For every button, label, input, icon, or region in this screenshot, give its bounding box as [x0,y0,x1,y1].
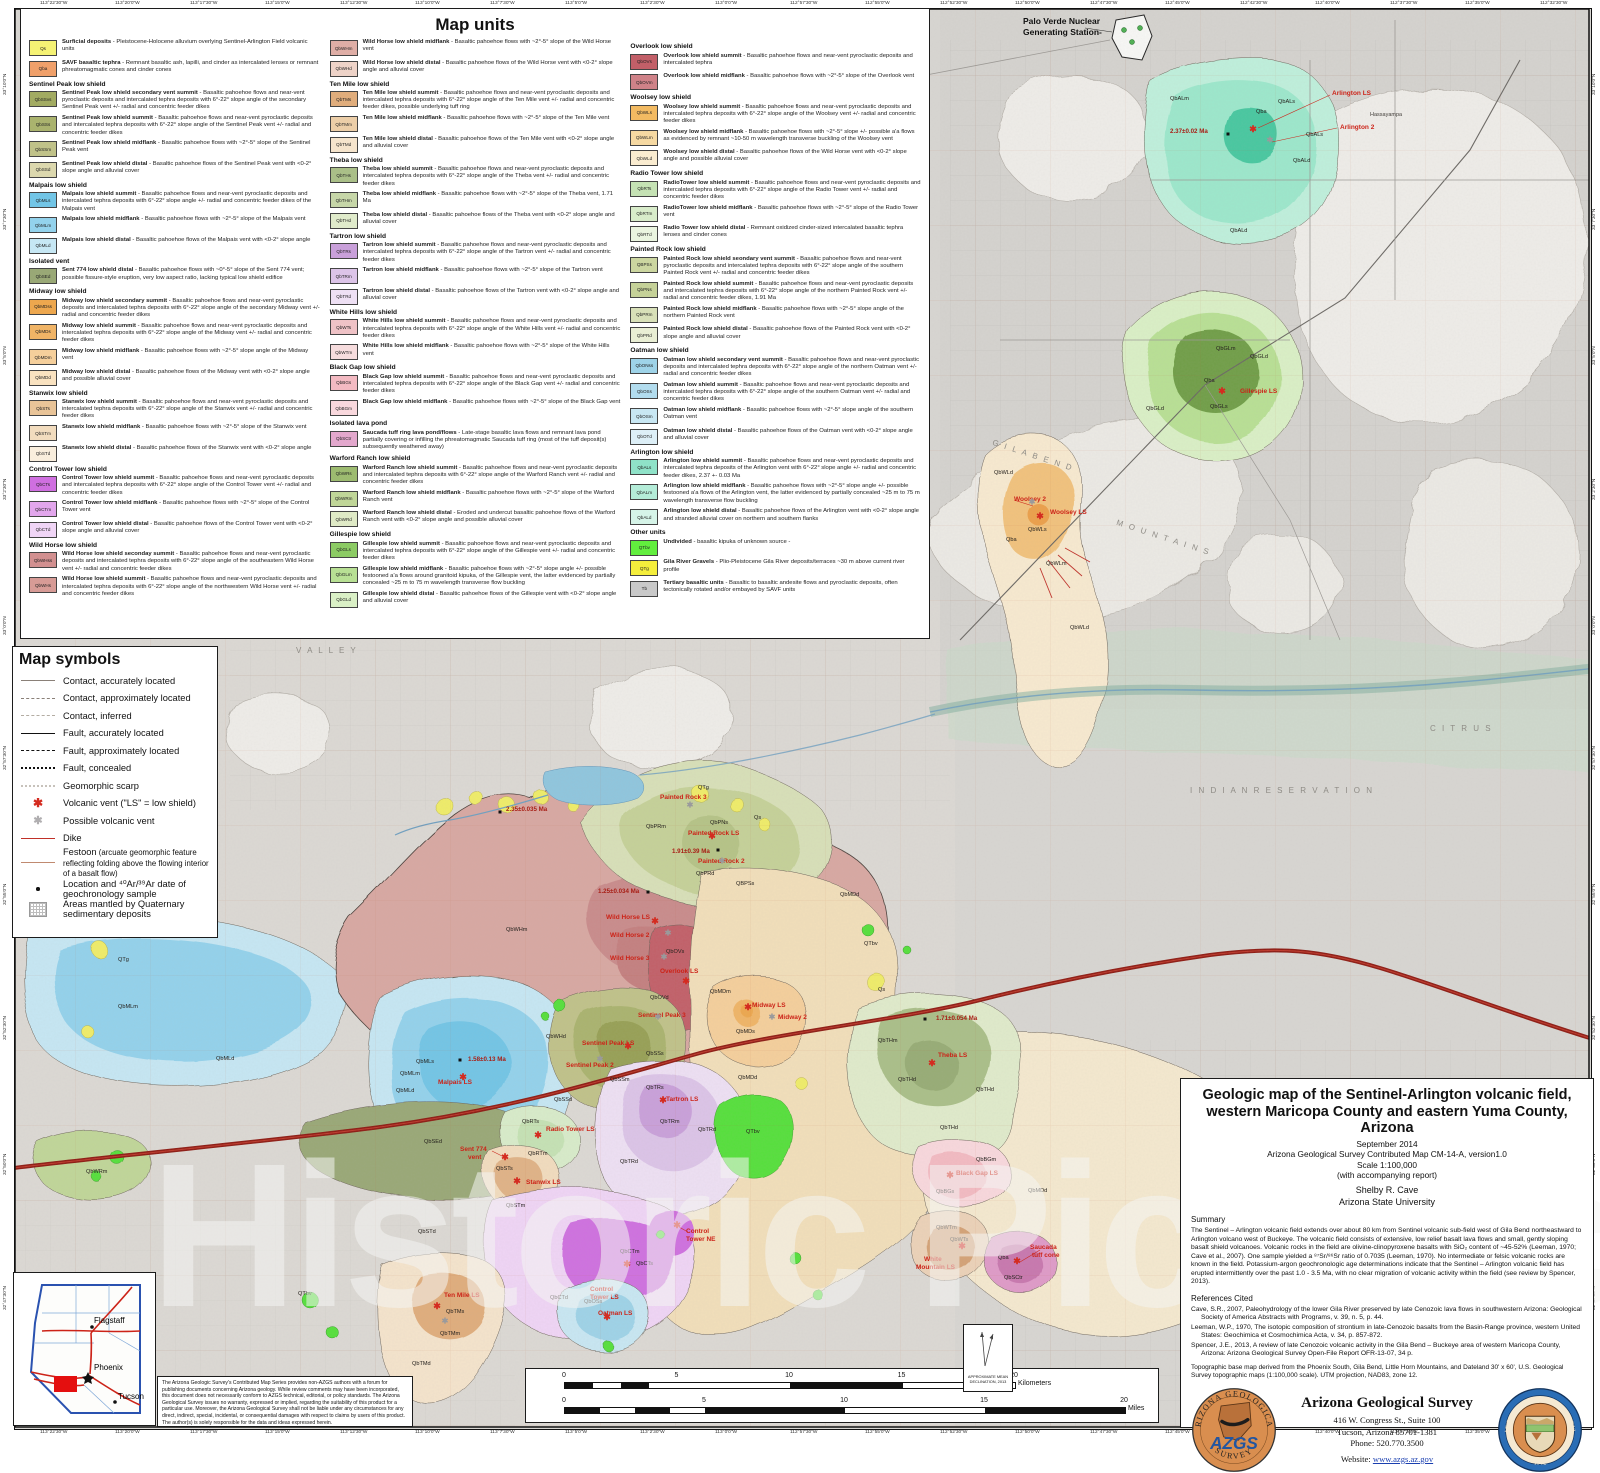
l-fa-symbol-icon [19,733,57,734]
unit-description: Tartron low shield distal - Basaltic pah… [363,288,621,302]
legend-unit-row: QbWHmWild Horse low shield midflank - Ba… [330,39,621,56]
unit-swatch: QbMDs [29,324,57,340]
map-series: Arizona Geological Survey Contributed Ma… [1191,1149,1583,1159]
longitude-label-bottom: 113°7'30"W [490,1430,515,1435]
unit-description: Sentinel Peak low shield summit - Basalt… [62,115,320,137]
disclaimer-box: The Arizona Geologic Survey's Contribute… [157,1376,413,1427]
unit-description: Painted Rock low shield summit - Basalti… [663,281,921,303]
scale-tick: 5 [675,1372,679,1379]
map-symbol-row: Fault, concealed [19,760,211,778]
unit-swatch: QbCTs [29,476,57,492]
unit-description: Theba low shield summit - Basaltic pahoe… [363,166,621,188]
unit-description: Ten Mile low shield distal - Basaltic pa… [363,136,621,150]
unit-description: Theba low shield distal - Basaltic pahoe… [363,212,621,226]
legend-group-header: Painted Rock low shield [630,246,921,253]
legend-group-header: Radio Tower low shield [630,170,921,177]
unit-swatch: QbSCtr [330,431,358,447]
unit-description: Radio Tower low shield distal - Remnant … [663,225,921,239]
unit-description: Painted Rock low shield seondary vent su… [663,256,921,278]
longitude-label-bottom: 113°12'30"W [340,1430,367,1435]
map-sheet: { "map_units": { "title": "Map units", "… [0,0,1600,1439]
longitude-label-top: 113°15'0"W [265,1,290,6]
unit-swatch: QbWHs [29,577,57,593]
unit-description: Stanwix low shield distal - Basaltic pah… [62,445,311,452]
unit-description: Gillespie low shield summit - Basaltic p… [363,541,621,563]
longitude-label-top: 112°40'0"W [1315,1,1340,6]
legend-unit-row: QbOSsOatman low shield summit - Basaltic… [630,382,921,404]
unit-swatch: QbOSs [630,383,658,399]
legend-unit-row: QbTHsTheba low shield summit - Basaltic … [330,166,621,188]
legend-unit-row: QbSTdStanwix low shield distal - Basalti… [29,445,320,462]
unit-description: Ten Mile low shield midflank - Basaltic … [363,115,610,122]
l-dk-symbol-icon [19,838,57,839]
agency-name: Arizona Geological Survey [1301,1395,1473,1412]
longitude-label-bottom: 113°5'0"W [565,1430,587,1435]
declination-diagram: APPROXIMATE MEAN DECLINATION, 2013 [963,1324,1013,1392]
unit-swatch: QbONss [630,358,658,374]
unit-swatch: QbTRd [330,289,358,305]
summary-heading: Summary [1191,1215,1583,1224]
scale-tick: 10 [840,1397,848,1404]
unit-description: Wild Horse low shield distal - Basaltic … [363,60,621,74]
unit-description: Painted Rock low shield midflank - Basal… [663,306,921,320]
unit-swatch: QbSTm [29,425,57,441]
unit-swatch: QbBGm [330,400,358,416]
longitude-label-top: 112°42'30"W [1240,1,1267,6]
legend-unit-row: QbWHdWild Horse low shield distal - Basa… [330,60,621,77]
longitude-label-bottom: 113°20'0"W [115,1430,140,1435]
longitude-label-top: 113°22'30"W [40,1,67,6]
legend-unit-row: QbTRsTartron low shield summit - Basalti… [330,242,621,264]
title-block: Geologic map of the Sentinel-Arlington v… [1180,1078,1594,1428]
map-symbol-label: Volcanic vent ("LS" = low shield) [63,798,196,808]
unit-swatch: QbCTd [29,522,57,538]
agency-phone: Phone: 520.770.3500 [1301,1438,1473,1450]
map-symbol-row: ✱Volcanic vent ("LS" = low shield) [19,795,211,813]
map-title: Geologic map of the Sentinel-Arlington v… [1197,1087,1577,1137]
unit-swatch: QbMDd [29,370,57,386]
legend-unit-row: QbRTmRadioTower low shield midflank - Ba… [630,205,921,222]
agency-block: ARIZONA GEOLOGICAL SURVEY AZGS Arizona G… [1191,1387,1583,1473]
longitude-label-top: 113°20'0"W [115,1,140,6]
legend-group-header: Tartron low shield [330,233,621,240]
unit-description: Oatman low shield summit - Basaltic paho… [663,382,921,404]
scale-tick: 0 [562,1372,566,1379]
unit-description: Woolsey low shield midflank - Basaltic p… [663,129,921,143]
legend-unit-row: QbSTsStanwix low shield summit - Basalti… [29,399,320,421]
unit-swatch: QbTHs [330,167,358,183]
legend-unit-row: QbWRsWarford Ranch low shield summit - B… [330,465,621,487]
unit-swatch: QbGLm [330,567,358,583]
unit-swatch: QTg [630,560,658,576]
map-symbol-label: Contact, approximately located [63,693,191,703]
unit-description: Black Gap low shield summit - Basaltic p… [363,374,621,396]
summary-text: The Sentinel – Arlington volcanic field … [1191,1227,1583,1287]
scale-tick: 15 [898,1372,906,1379]
legend-unit-row: QbWTsWhite Hills low shield summit - Bas… [330,318,621,340]
unit-description: Oatman low shield distal - Basaltic paho… [663,428,921,442]
latitude-label-left: 33°0'0"N [3,616,8,635]
affiliation: Arizona State University [1191,1197,1583,1208]
unit-swatch: QbMLd [29,238,57,254]
latitude-label-left: 33°7'30"N [3,209,8,230]
l-ca-symbol-icon [19,680,57,681]
latitude-label-right: 32°52'30"N [1592,1016,1597,1040]
legend-unit-row: QbCTmControl Tower low shield midflank -… [29,500,320,517]
map-symbol-label: Location and ⁴⁰Ar/³⁹Ar date of geochrono… [63,879,211,899]
unit-description: Sentinel Peak low shield distal - Basalt… [62,161,320,175]
unit-swatch: QbRTd [630,226,658,242]
legend-unit-row: QbTHmTheba low shield midflank - Basalti… [330,191,621,208]
unit-swatch: QbTMd [330,137,358,153]
longitude-label-top: 113°0'0"W [715,1,737,6]
vent-symbol-icon: ✱ [19,796,57,810]
unit-description: Control Tower low shield distal - Basalt… [62,521,320,535]
map-symbol-label: Fault, approximately located [63,746,179,756]
unit-swatch: QbMLs [29,192,57,208]
unit-description: Saucada tuff ring lava pond/flows - Late… [363,430,621,452]
map-date: September 2014 [1191,1139,1583,1149]
map-symbol-row: Dike [19,830,211,848]
longitude-label-bottom: 112°52'30"W [940,1430,967,1435]
legend-unit-row: QbOTdOatman low shield distal - Basaltic… [630,428,921,445]
unit-swatch: QbTMs [330,91,358,107]
map-units-panel: Map units QsSurficial deposits - Pleisto… [20,8,930,639]
unit-swatch: QbWHm [330,40,358,56]
legend-unit-row: QbWRdWarford Ranch low shield distal - E… [330,510,621,527]
longitude-label-top: 112°35'0"W [1465,1,1490,6]
latitude-label-left: 32°55'0"N [3,884,8,905]
legend-unit-row: QbRTdRadio Tower low shield distal - Rem… [630,225,921,242]
agency-addr1: 416 W. Congress St., Suite 100 [1301,1415,1473,1427]
longitude-label-top: 112°52'30"W [940,1,967,6]
unit-swatch: QbGLd [330,592,358,608]
legend-group-header: Woolsey low shield [630,94,921,101]
scale-unit-label: Miles [1128,1405,1144,1412]
map-symbol-row: Fault, approximately located [19,742,211,760]
legend-unit-row: QbSSdSentinel Peak low shield distal - B… [29,161,320,178]
longitude-label-bottom: 112°47'30"W [1090,1430,1117,1435]
unit-description: Sentinel Peak low shield secondary vent … [62,90,320,112]
references-heading: References Cited [1191,1294,1583,1303]
legend-unit-row: QsSurficial deposits - Pleistocene-Holoc… [29,39,320,56]
legend-unit-row: QTgGila River Gravels - Plio-Pleistocene… [630,559,921,576]
unit-description: Wild Horse low shield seconday summit - … [62,551,320,573]
legend-unit-row: QbSTmStanwix low shield midflank - Basal… [29,424,320,441]
longitude-label-top: 113°2'30"W [640,1,665,6]
unit-swatch: QbRTs [630,181,658,197]
map-units-title: Map units [29,15,921,35]
map-symbol-label: Festoon (arcuate geomorphic feature refl… [63,847,211,879]
unit-description: RadioTower low shield midflank - Basalti… [663,205,921,219]
unit-swatch: QbSSvs [29,91,57,107]
legend-column-2: QbWHmWild Horse low shield midflank - Ba… [330,39,621,611]
legend-unit-row: QbWLsWoolsey low shield summit - Basalti… [630,104,921,126]
legend-unit-row: QbPNsPainted Rock low shield summit - Ba… [630,281,921,303]
legend-unit-row: QbTMmTen Mile low shield midflank - Basa… [330,115,621,132]
longitude-label-bottom: 112°55'0"W [865,1430,890,1435]
unit-description: Gillespie low shield midflank - Basaltic… [363,566,621,588]
unit-swatch: QTbv [630,540,658,556]
legend-unit-row: QbMDdMidway low shield distal - Basaltic… [29,369,320,386]
map-symbol-row: ✱Possible volcanic vent [19,812,211,830]
unit-swatch: QbOVs [630,54,658,70]
latitude-label-right: 33°7'30"N [1592,209,1597,230]
legend-unit-row: QbALsArlington low shield summit - Basal… [630,458,921,480]
legend-unit-row: QbWHssWild Horse low shield seconday sum… [29,551,320,573]
map-symbol-row: Festoon (arcuate geomorphic feature refl… [19,847,211,879]
longitude-label-top: 112°32'30"W [1540,1,1567,6]
legend-group-header: Wild Horse low shield [29,542,320,549]
unit-swatch: QbPRm [630,307,658,323]
unit-swatch: QbPNs [630,282,658,298]
longitude-label-top: 113°17'30"W [190,1,217,6]
map-symbols-list: Contact, accurately locatedContact, appr… [19,672,211,920]
unit-swatch: QbSSm [29,141,57,157]
references-list: Cave, S.R., 2007, Paleohydrology of the … [1191,1306,1583,1358]
latitude-label-left: 33°10'0"N [3,74,8,95]
legend-unit-row: QBPSsPainted Rock low shield seondary ve… [630,256,921,278]
legend-unit-row: QbOVsOverlook low shield summit - Basalt… [630,53,921,70]
unit-description: Tartron low shield midflank - Basaltic p… [363,267,603,274]
legend-group-header: Warford Ranch low shield [330,455,621,462]
unit-description: Stanwix low shield summit - Basaltic pah… [62,399,320,421]
legend-unit-row: QbSSsSentinel Peak low shield summit - B… [29,115,320,137]
legend-unit-row: TbTertiary basaltic units - Basaltic to … [630,580,921,597]
map-symbol-label: Dike [63,833,82,843]
unit-description: Overlook low shield summit - Basaltic pa… [663,53,921,67]
unit-swatch: QbCTm [29,501,57,517]
inset-tucson-label: Tucson [118,1392,144,1401]
legend-group-header: Overlook low shield [630,43,921,50]
unit-description: Wild Horse low shield summit - Basaltic … [62,576,320,598]
legend-unit-row: QbBGsBlack Gap low shield summit - Basal… [330,374,621,396]
legend-unit-row: QbOVmOverlook low shield midflank - Basa… [630,73,921,90]
legend-group-header: Sentinel Peak low shield [29,81,320,88]
unit-swatch: QbTMm [330,116,358,132]
legend-unit-row: QbMLdMalpais low shield distal - Basalti… [29,237,320,254]
scale-tick: 5 [702,1397,706,1404]
unit-description: Control Tower low shield summit - Basalt… [62,475,320,497]
longitude-label-top: 112°37'30"W [1390,1,1417,6]
unit-swatch: QbSTs [29,400,57,416]
unit-swatch: QbOVm [630,74,658,90]
unit-description: Tertiary basaltic units - Basaltic to ba… [663,580,921,594]
legend-unit-row: QbaSAVF basaltic tephra - Remnant basalt… [29,60,320,77]
unit-swatch: QbSSs [29,116,57,132]
scale-bar-box: 05101520Kilometers 05101520Miles [525,1368,1159,1423]
legend-group-header: Arlington low shield [630,449,921,456]
l-fap-symbol-icon [19,750,57,751]
reference-entry: Spencer, J.E., 2013, A review of late Ce… [1191,1342,1583,1359]
map-symbol-label: Contact, accurately located [63,676,175,686]
unit-description: Arlington low shield distal - Basaltic p… [663,508,921,522]
unit-swatch: QbPRd [630,327,658,343]
longitude-label-top: 112°55'0"W [865,1,890,6]
legend-unit-row: QbSSmSentinel Peak low shield midflank -… [29,140,320,157]
unit-description: RadioTower low shield summit - Basaltic … [663,180,921,202]
unit-swatch: QbBGs [330,375,358,391]
unit-description: Sent 774 low shield distal - Basaltic pa… [62,267,320,281]
legend-group-header: Ten Mile low shield [330,81,621,88]
scale-tick: 0 [562,1397,566,1404]
l-fc-symbol-icon [19,767,57,769]
unit-description: Black Gap low shield midflank - Basaltic… [363,399,621,406]
unit-description: Oatman low shield secondary vent summit … [663,357,921,379]
unit-description: Malpais low shield midflank - Basaltic p… [62,216,306,223]
unit-description: Midway low shield secondary summit - Bas… [62,298,320,320]
unit-swatch: QbWLs [630,105,658,121]
longitude-label-top: 112°57'30"W [790,1,817,6]
map-symbol-row: Contact, inferred [19,707,211,725]
dot-symbol-icon [19,887,57,891]
unit-swatch: QbALd [630,509,658,525]
svg-text:AZGS: AZGS [1209,1432,1258,1452]
map-symbol-label: Contact, inferred [63,711,132,721]
unit-description: Painted Rock low shield distal - Basalti… [663,326,921,340]
latitude-label-right: 33°2'30"N [1592,479,1597,500]
unit-swatch: QbOTd [630,429,658,445]
l-ci-symbol-icon [19,715,57,716]
unit-description: Undivided - basaltic kipuka of unknown s… [663,539,790,546]
unit-swatch: QbMLm [29,217,57,233]
unit-description: Surficial deposits - Pleistocene-Holocen… [62,39,320,53]
unit-description: Theba low shield midflank - Basaltic pah… [363,191,621,205]
legend-group-header: Stanwix low shield [29,390,320,397]
legend-unit-row: QbMLsMalpais low shield summit - Basalti… [29,191,320,213]
unit-swatch: QbSSd [29,162,57,178]
azgs-logo: ARIZONA GEOLOGICAL SURVEY AZGS [1191,1387,1277,1473]
legend-unit-row: QbONssOatman low shield secondary vent s… [630,357,921,379]
map-extent-box [54,1376,77,1392]
kilometers-scale-bar: 05101520Kilometers [526,1369,1158,1395]
miles-scale-bar: 05101520Miles [526,1395,1158,1421]
unit-description: White Hills low shield midflank - Basalt… [363,343,621,357]
svg-text:1912: 1912 [1534,1459,1547,1466]
unit-description: Gila River Gravels - Plio-Pleistocene Gi… [663,559,921,573]
unit-description: Woolsey low shield summit - Basaltic pah… [663,104,921,126]
legend-unit-row: QbWHsWild Horse low shield summit - Basa… [29,576,320,598]
legend-unit-row: QbTRdTartron low shield distal - Basalti… [330,288,621,305]
legend-group-header: Isolated vent [29,258,320,265]
unit-swatch: QbMDm [29,349,57,365]
legend-group-header: Other units [630,529,921,536]
l-fe-symbol-icon [19,862,57,863]
legend-unit-row: QbPRmPainted Rock low shield midflank - … [630,306,921,323]
unit-swatch: QbRTm [630,206,658,222]
unit-description: Woolsey low shield distal - Basaltic pah… [663,149,921,163]
unit-swatch: Tb [630,581,658,597]
longitude-label-bottom: 112°57'30"W [790,1430,817,1435]
legend-unit-row: QbMLmMalpais low shield midflank - Basal… [29,216,320,233]
unit-description: Arlington low shield summit - Basaltic p… [663,458,921,480]
unit-swatch: QbWTs [330,319,358,335]
longitude-label-top: 112°45'0"W [1165,1,1190,6]
unit-description: Malpais low shield distal - Basaltic pah… [62,237,310,244]
unit-swatch: Qs [29,40,57,56]
unit-swatch: QbALm [630,484,658,500]
unit-description: Warford Ranch low shield summit - Basalt… [363,465,621,487]
legend-unit-row: QbALdArlington low shield distal - Basal… [630,508,921,525]
unit-description: Gillespie low shield distal - Basaltic p… [363,591,621,605]
unit-description: Control Tower low shield midflank - Basa… [62,500,320,514]
map-symbol-row: Fault, accurately located [19,725,211,743]
unit-swatch: QbSTd [29,446,57,462]
longitude-label-top: 113°5'0"W [565,1,587,6]
l-gs-symbol-icon [19,785,57,787]
latitude-label-right: 33°5'0"N [1592,346,1597,365]
map-note: (with accompanying report) [1191,1170,1583,1180]
longitude-label-bottom: 113°17'30"W [190,1430,217,1435]
latitude-label-right: 33°0'0"N [1592,616,1597,635]
agency-addr2: Tucson, Arizona 85701-1381 [1301,1427,1473,1439]
website-label: Website: [1341,1454,1371,1464]
unit-swatch: QbWHss [29,552,57,568]
legend-group-header: Midway low shield [29,288,320,295]
longitude-label-bottom: 112°45'0"W [1165,1430,1190,1435]
legend-unit-row: QbRTsRadioTower low shield summit - Basa… [630,180,921,202]
legend-unit-row: QTbvUndivided - basaltic kipuka of unkno… [630,539,921,556]
website-link[interactable]: www.azgs.az.gov [1373,1454,1433,1464]
map-symbol-row: Areas mantled by Quaternary sedimentary … [19,899,211,919]
legend-unit-row: QbWLdWoolsey low shield distal - Basalti… [630,149,921,166]
unit-description: Sentinel Peak low shield midflank - Basa… [62,140,320,154]
scale-tick: 10 [785,1372,793,1379]
unit-swatch: QbWHd [330,61,358,77]
legend-unit-row: QbCTsControl Tower low shield summit - B… [29,475,320,497]
map-symbol-label: Fault, concealed [63,763,131,773]
latitude-label-right: 32°55'0"N [1592,884,1597,905]
latitude-label-left: 32°50'0"N [3,1154,8,1175]
unit-swatch: QbWRs [330,466,358,482]
latitude-label-left: 33°2'30"N [3,479,8,500]
unit-swatch: QbWRd [330,511,358,527]
longitude-label-bottom: 113°22'30"W [40,1430,67,1435]
map-symbol-row: Contact, accurately located [19,672,211,690]
legend-unit-row: QbMDsMidway low shield summit - Basaltic… [29,323,320,345]
unit-swatch: Qba [29,61,57,77]
unit-swatch: QbTHd [330,213,358,229]
legend-unit-row: QbALmArlington low shield midflank - Bas… [630,483,921,505]
longitude-label-bottom: 113°10'0"W [415,1430,440,1435]
latitude-label-left: 32°52'30"N [3,1016,8,1040]
legend-unit-row: QbPRdPainted Rock low shield distal - Ba… [630,326,921,343]
legend-unit-row: QbTMdTen Mile low shield distal - Basalt… [330,136,621,153]
declination-line2: DECLINATION, 2013 [965,1379,1011,1384]
longitude-label-top: 113°12'30"W [340,1,367,6]
legend-unit-row: QbMDmMidway low shield midflank - Basalt… [29,348,320,365]
legend-column-1: QsSurficial deposits - Pleistocene-Holoc… [29,39,320,611]
unit-swatch: QbTRs [330,243,358,259]
map-symbol-label: Geomorphic scarp [63,781,139,791]
legend-group-header: White Hills low shield [330,309,621,316]
longitude-label-top: 113°7'30"W [490,1,515,6]
longitude-label-bottom: 113°0'0"W [715,1430,737,1435]
longitude-label-top: 112°50'0"W [1015,1,1040,6]
unit-swatch: QBPSs [630,257,658,273]
legend-unit-row: QbTMsTen Mile low shield summit - Basalt… [330,90,621,112]
legend-column-3: Overlook low shieldQbOVsOverlook low shi… [630,39,921,611]
unit-description: Midway low shield distal - Basaltic paho… [62,369,320,383]
unit-description: White Hills low shield summit - Basaltic… [363,318,621,340]
mantle-symbol-icon [19,902,57,917]
legend-unit-row: QbCTdControl Tower low shield distal - B… [29,521,320,538]
legend-group-header: Control Tower low shield [29,466,320,473]
legend-unit-row: QbWLmWoolsey low shield midflank - Basal… [630,129,921,146]
unit-swatch: QbSEd [29,268,57,284]
disclaimer-text: The Arizona Geologic Survey's Contribute… [162,1380,408,1426]
scale-tick: 15 [980,1397,988,1404]
